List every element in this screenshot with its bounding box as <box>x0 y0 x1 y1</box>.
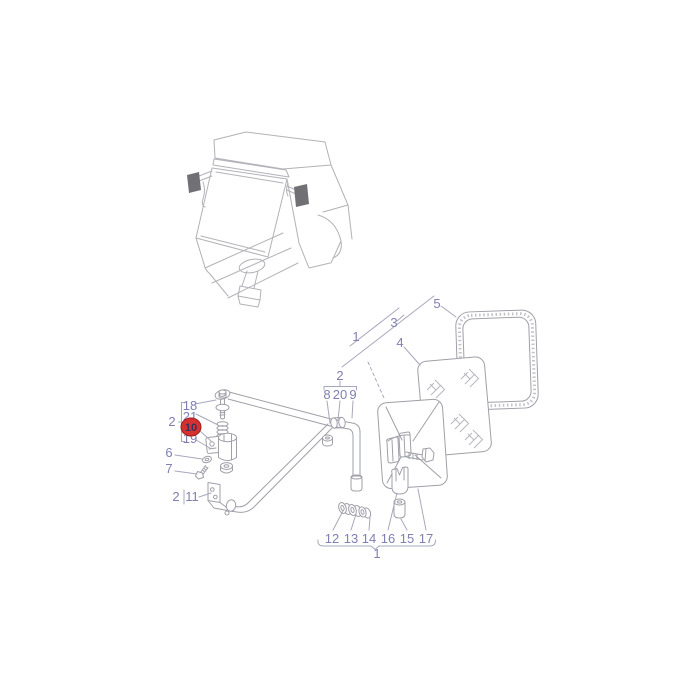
grommet <box>221 463 233 470</box>
cab-right-mirror <box>294 184 309 207</box>
clamp-body-part-19 <box>219 433 237 473</box>
part-label-7: 7 <box>165 461 172 476</box>
tractor-cab-drawing <box>187 132 352 307</box>
part-label-14: 14 <box>362 531 376 546</box>
mirror-assembly-exploded-diagram: 1 2 3 4 5 8 20 9 18 21 2 19 6 7 2 11 12 … <box>0 0 700 700</box>
part-label-1-bottom: 1 <box>373 546 380 561</box>
nut-part-8 <box>323 435 333 446</box>
part-label-1-top: 1 <box>352 329 359 344</box>
dashed-leader-to-plate <box>368 362 384 398</box>
part-label-12: 12 <box>325 531 339 546</box>
cab-left-mirror <box>187 172 201 193</box>
sleeve-part-15 <box>394 499 405 518</box>
part-label-6: 6 <box>165 445 172 460</box>
part-label-2-left: 2 <box>168 414 175 429</box>
part-label-10: 10 <box>185 422 197 434</box>
part-label-5: 5 <box>433 296 440 311</box>
mirror-back-plate-part-17 <box>377 399 448 489</box>
parts-catalog-page: 1 2 3 4 5 8 20 9 18 21 2 19 6 7 2 11 12 … <box>0 0 700 700</box>
mounting-bracket-part-11 <box>208 483 237 516</box>
clamp-bolt-head <box>422 448 434 462</box>
part-label-20: 20 <box>333 387 347 402</box>
arm-brace-tube <box>232 424 332 512</box>
part-label-17: 17 <box>419 531 433 546</box>
steering-wheel <box>238 257 266 275</box>
part-label-9: 9 <box>349 387 356 402</box>
washer-part-6 <box>202 455 213 464</box>
highlighted-part-10-badge: 10 <box>181 418 201 436</box>
washer-part-14 <box>358 506 372 519</box>
part-label-3: 3 <box>390 315 397 330</box>
bolt-part-7 <box>196 466 209 480</box>
part-label-8: 8 <box>323 387 330 402</box>
part-label-11: 11 <box>185 489 199 504</box>
part-label-2-top: 2 <box>336 368 343 383</box>
part-label-4: 4 <box>396 335 403 350</box>
part-label-13: 13 <box>344 531 358 546</box>
part-label-16: 16 <box>381 531 395 546</box>
part-label-2-bracket: 2 <box>172 489 179 504</box>
part-label-15: 15 <box>400 531 414 546</box>
